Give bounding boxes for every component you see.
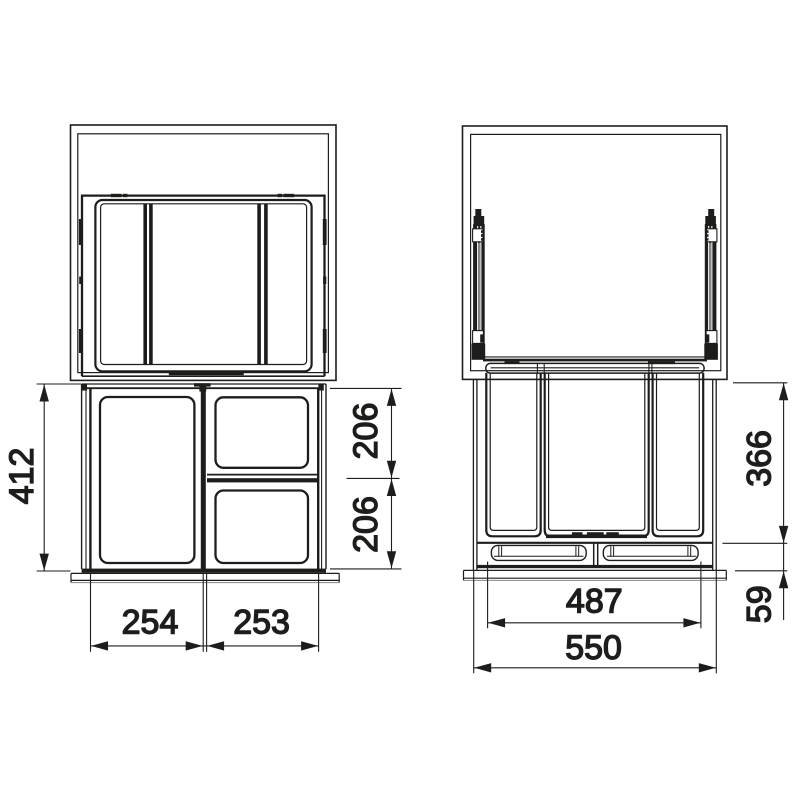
svg-text:366: 366 — [740, 430, 778, 487]
svg-text:550: 550 — [565, 629, 622, 667]
svg-text:254: 254 — [122, 604, 179, 642]
svg-text:206: 206 — [347, 496, 385, 553]
svg-text:487: 487 — [566, 582, 623, 620]
svg-text:206: 206 — [347, 403, 385, 460]
svg-text:253: 253 — [233, 604, 290, 642]
svg-text:412: 412 — [3, 448, 41, 505]
svg-text:59: 59 — [741, 585, 779, 623]
